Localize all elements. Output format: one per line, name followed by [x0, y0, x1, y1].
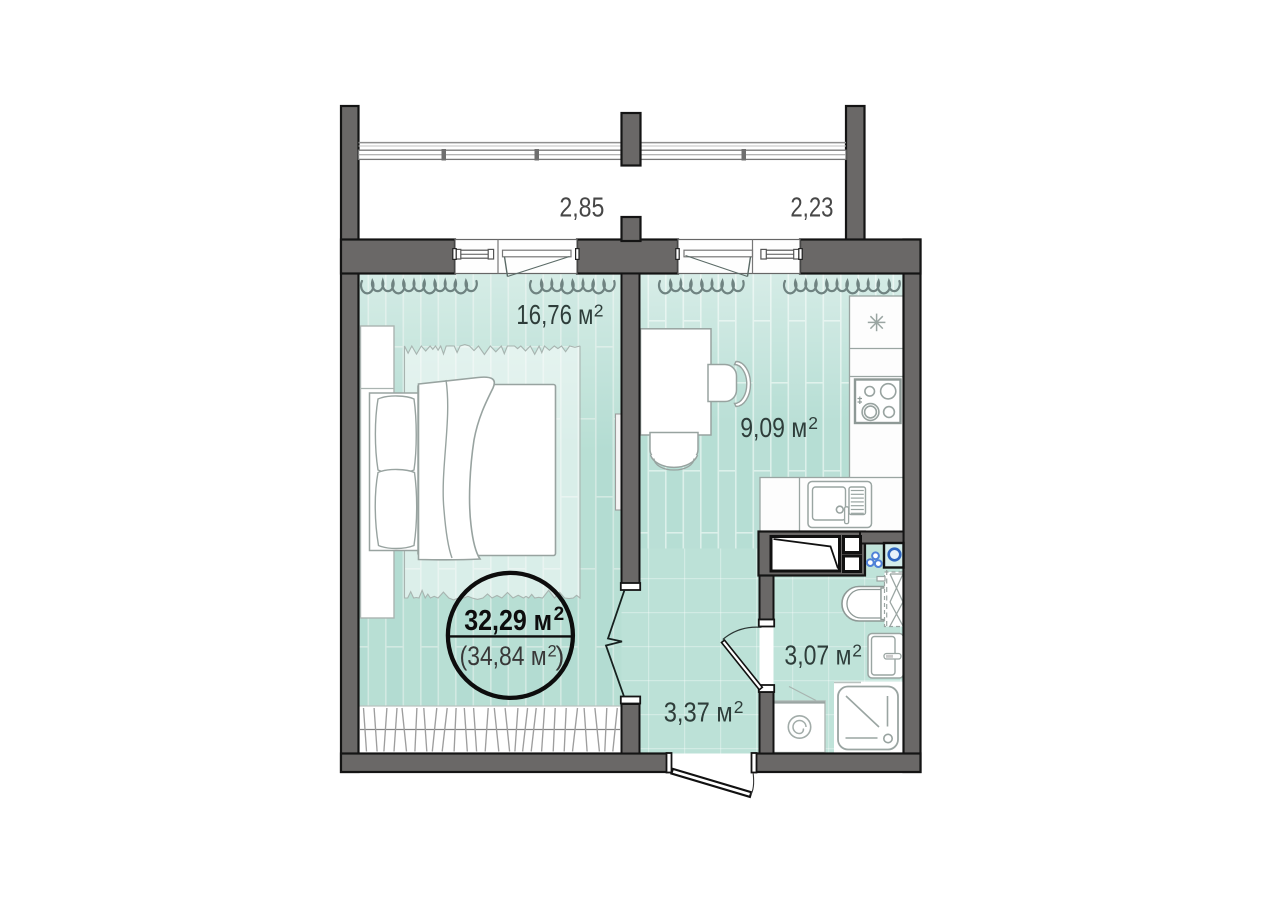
svg-text:3,37 м: 3,37 м	[664, 696, 733, 727]
svg-text:2: 2	[808, 413, 818, 433]
svg-text:3,07 м: 3,07 м	[784, 640, 851, 671]
svg-text:9,09 м: 9,09 м	[740, 412, 807, 443]
svg-text:32,29 м: 32,29 м	[464, 605, 552, 637]
svg-text:): )	[556, 641, 565, 671]
svg-text:2: 2	[734, 697, 744, 717]
svg-text:(34,84 м: (34,84 м	[460, 641, 547, 671]
svg-text:16,76 м: 16,76 м	[516, 299, 593, 330]
svg-text:2: 2	[594, 301, 604, 321]
svg-text:2,23: 2,23	[790, 191, 833, 222]
svg-text:2: 2	[554, 604, 565, 625]
svg-text:2,85: 2,85	[559, 191, 604, 222]
svg-text:2: 2	[852, 641, 862, 661]
